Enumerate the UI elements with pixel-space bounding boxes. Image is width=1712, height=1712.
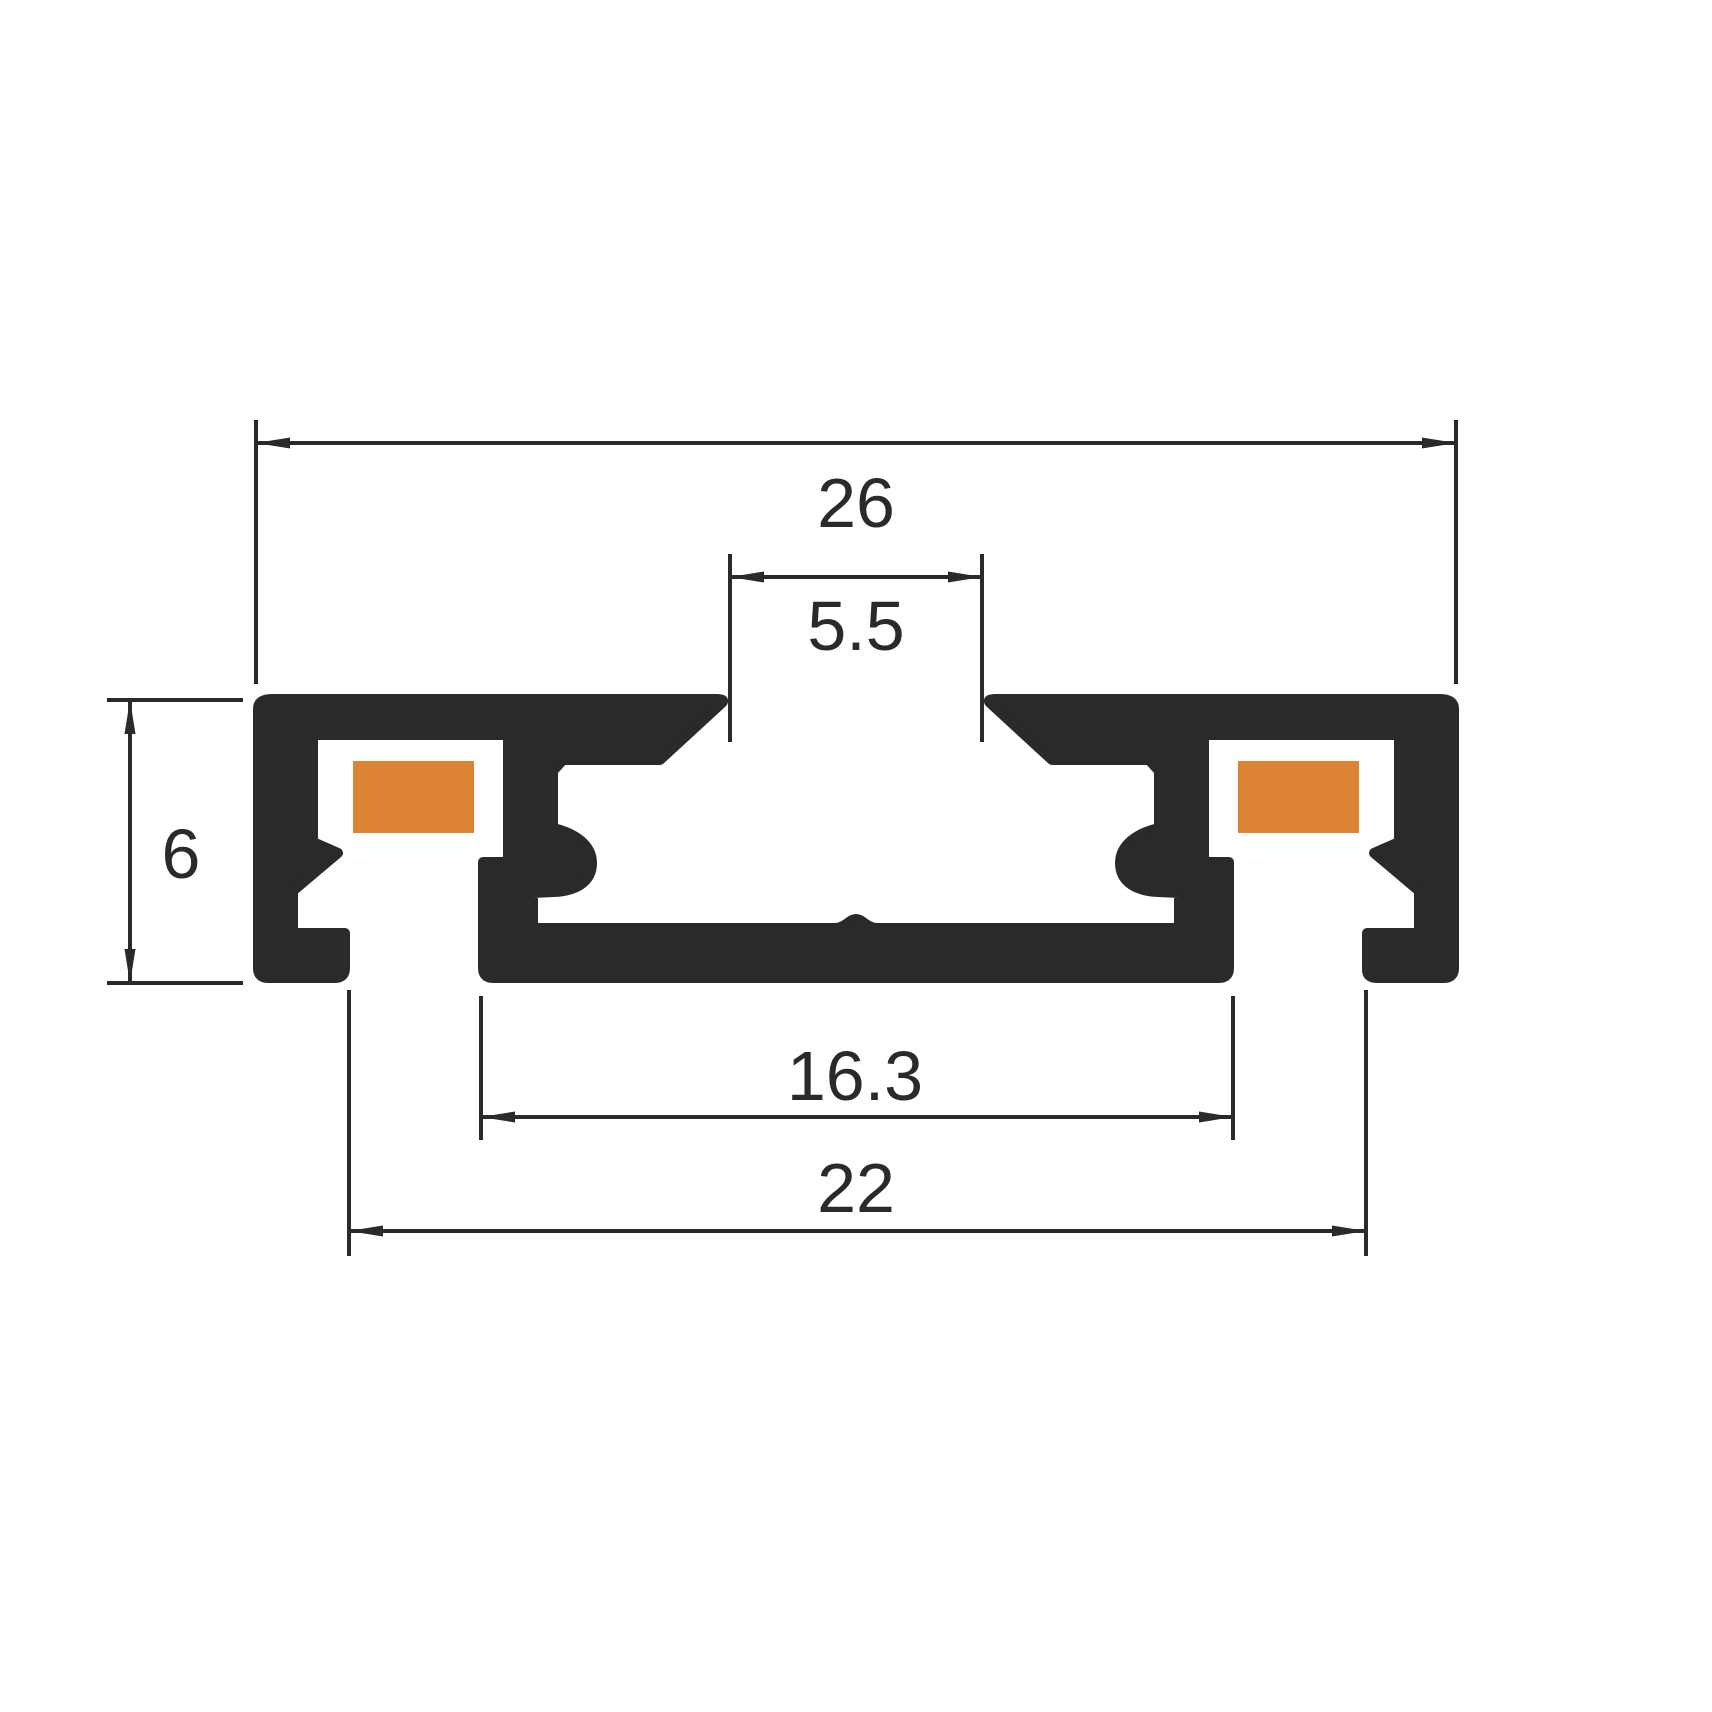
label-top-opening: 5.5 [807,587,904,665]
profile-silhouette [258,699,1454,978]
led-strip-right [1238,761,1359,833]
label-base-width: 22 [817,1149,895,1227]
drawing-canvas: 26 5.5 6 16.3 22 [0,0,1712,1712]
label-inner-width: 16.3 [787,1037,923,1115]
led-strip-left [353,761,474,833]
profile-technical-drawing: 26 5.5 6 16.3 22 [0,0,1712,1712]
label-overall-width: 26 [817,464,895,542]
label-height: 6 [162,815,201,893]
